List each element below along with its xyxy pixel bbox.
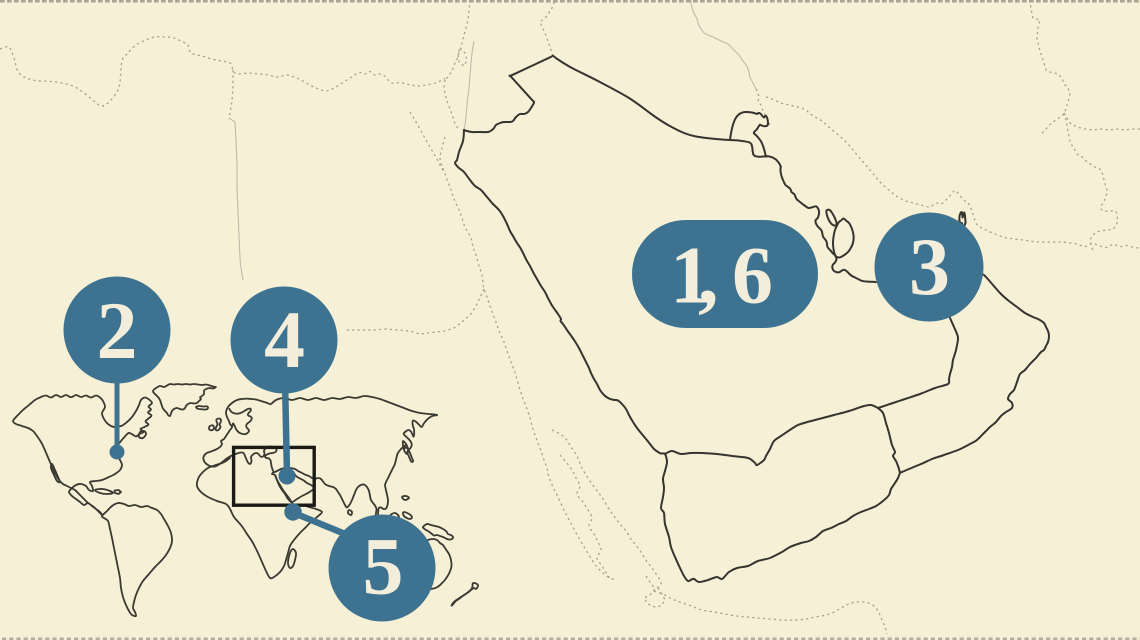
svg-text:4: 4 [264, 294, 305, 385]
svg-text:,: , [698, 230, 719, 321]
svg-text:3: 3 [909, 221, 950, 312]
svg-text:2: 2 [97, 285, 138, 376]
svg-text:6: 6 [732, 230, 773, 321]
svg-text:5: 5 [363, 521, 404, 612]
